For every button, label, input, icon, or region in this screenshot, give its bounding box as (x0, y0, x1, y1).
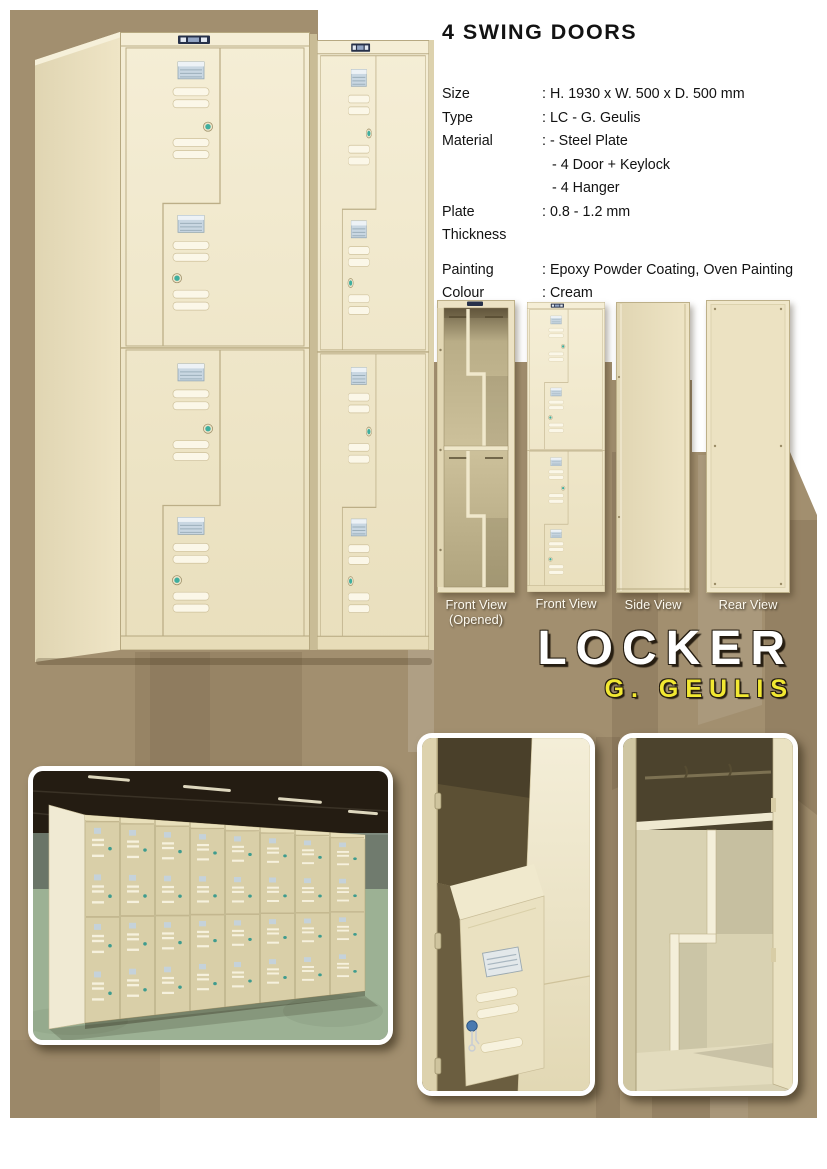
spec-row: Painting : Epoxy Powder Coating, Oven Pa… (442, 259, 817, 283)
view-rear: Rear View (702, 300, 794, 612)
spec-sheet: 4 SWING DOORS Size : H. 1930 x W. 500 x … (442, 20, 817, 306)
front-view-drawing (527, 302, 605, 592)
spec-value: : Epoxy Powder Coating, Oven Painting (542, 259, 817, 283)
product-render-two-lockers (28, 24, 438, 669)
spec-value: : H. 1930 x W. 500 x D. 500 mm (542, 83, 817, 107)
view-label: Rear View (702, 597, 794, 612)
spec-label: Plate Thickness (442, 201, 542, 248)
spec-value: : - Steel Plate (542, 130, 817, 154)
spec-value: - 4 Door + Keylock (542, 154, 817, 178)
spec-row: Material : - Steel Plate (442, 130, 817, 154)
catalog-page: 4 SWING DOORS Size : H. 1930 x W. 500 x … (0, 0, 827, 1169)
spec-label: Material (442, 130, 542, 154)
side-view-drawing (616, 302, 690, 593)
photo-warehouse-lockers (28, 766, 393, 1045)
view-front: Front View (523, 302, 609, 611)
spec-row: Type : LC - G. Geulis (442, 107, 817, 131)
locker-row (49, 805, 378, 1040)
photo-open-locker-door (417, 733, 595, 1096)
locker-cabinet-right (317, 40, 428, 649)
view-label: Front View(Opened) (433, 597, 519, 627)
spec-label (442, 177, 542, 201)
brand-block: LOCKER G. GEULIS (537, 622, 794, 704)
spec-label: Size (442, 83, 542, 107)
spec-label: Painting (442, 259, 542, 283)
spec-value: - 4 Hanger (542, 177, 817, 201)
spec-rows: Size : H. 1930 x W. 500 x D. 500 mm Type… (442, 83, 817, 306)
view-front-opened: Front View(Opened) (433, 300, 519, 627)
view-side: Side View (612, 302, 694, 612)
spec-value: : LC - G. Geulis (542, 107, 817, 131)
front-opened-drawing (437, 300, 515, 593)
spec-row: Size : H. 1930 x W. 500 x D. 500 mm (442, 83, 817, 107)
view-label: Side View (612, 597, 694, 612)
spec-value: : 0.8 - 1.2 mm (542, 201, 817, 248)
spec-row: - 4 Hanger (442, 177, 817, 201)
locker-cabinet-left (121, 32, 310, 649)
page-title: 4 SWING DOORS (442, 20, 817, 45)
spec-row: Plate Thickness : 0.8 - 1.2 mm (442, 201, 817, 248)
spec-label (442, 154, 542, 178)
rear-view-drawing (706, 300, 790, 593)
spec-row: - 4 Door + Keylock (442, 154, 817, 178)
photo-open-locker-interior (618, 733, 798, 1096)
open-door-edge (773, 738, 793, 1091)
spec-label: Type (442, 107, 542, 131)
product-name: LOCKER (537, 622, 794, 675)
cabinet-side-panel (35, 32, 120, 662)
model-name: G. GEULIS (537, 675, 794, 704)
view-label: Front View (523, 596, 609, 611)
